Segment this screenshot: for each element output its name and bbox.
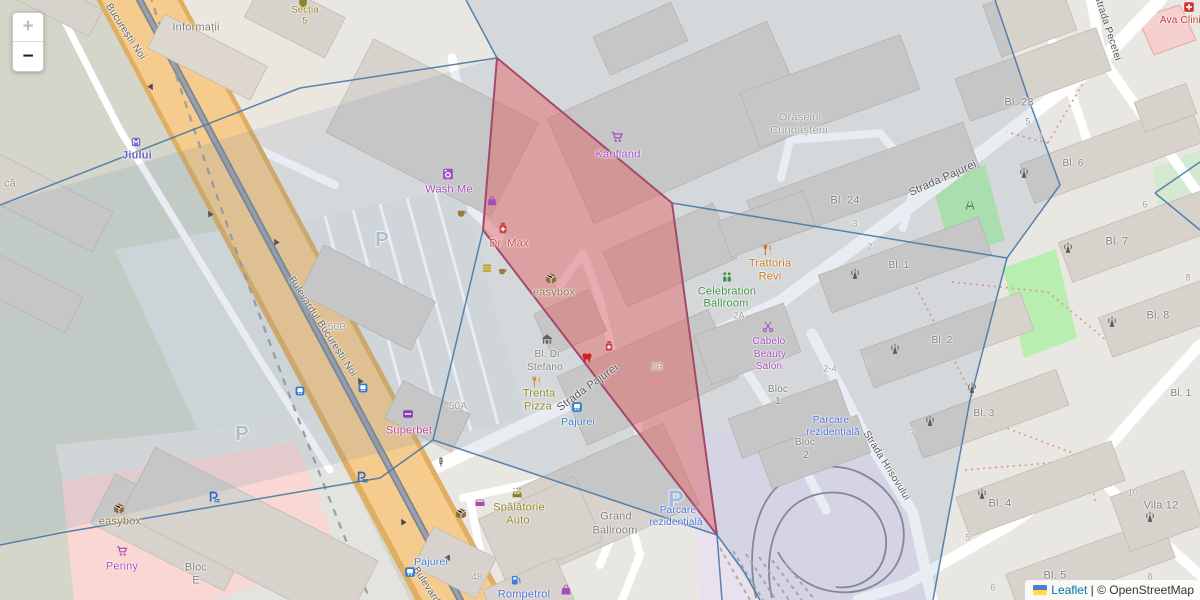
map-label: 6 <box>990 584 995 593</box>
supermarket-cart-icon <box>611 131 624 144</box>
map-label: Trenta <box>523 389 556 400</box>
map-label: Bl. 23 <box>1004 98 1033 109</box>
map-label: Bl. 3 <box>973 409 994 419</box>
bus-stop-icon <box>405 567 416 578</box>
car-wash-icon <box>511 487 523 499</box>
antenna-icon <box>1062 242 1075 255</box>
map-label: 5 <box>302 16 307 26</box>
map-label: Bulevardul <box>410 566 445 600</box>
fuel-station-icon <box>510 574 522 586</box>
bicycle-parking-icon <box>356 471 368 483</box>
map-label: Strada Hrisovului <box>861 430 912 503</box>
antenna-icon <box>1144 511 1157 524</box>
map-label: Strada Pajurei <box>555 362 620 414</box>
zoom-control: + − <box>12 12 44 72</box>
map-label: Celebration <box>698 287 756 298</box>
label-layer: InformațiiSecția5JiuluicăBucureștii NoiB… <box>0 0 1200 600</box>
map-label: Informații <box>172 23 219 34</box>
map-label: Bloc <box>768 385 788 395</box>
map-label: 2B <box>651 363 662 372</box>
map-label: 2 <box>867 243 872 252</box>
map-label: Stefano <box>527 363 563 373</box>
zoom-in-button[interactable]: + <box>13 13 43 42</box>
map-label: Bl. 7 <box>1105 237 1128 248</box>
map-label: Ava Clinic <box>1160 16 1200 26</box>
map-label: Bl. 4 <box>988 499 1011 510</box>
map-label: Superbet <box>386 426 432 437</box>
parcel-locker-icon <box>113 503 126 516</box>
antenna-icon <box>1018 167 1031 180</box>
map-label: Vila 12 <box>1144 501 1179 512</box>
cafe-icon <box>456 207 468 219</box>
map-label: 48 <box>471 573 483 583</box>
map-label: Bl. 24 <box>830 196 859 207</box>
restaurant-icon <box>762 244 774 256</box>
metro-station-icon <box>131 137 142 148</box>
playground-icon <box>964 199 976 211</box>
map-label: Wash Me <box>425 185 472 196</box>
cafe-icon <box>498 266 509 277</box>
zoom-out-button[interactable]: − <box>13 42 43 71</box>
parcel-locker-icon <box>455 508 468 521</box>
map-label: Strada Pecetei <box>1092 0 1123 62</box>
map-label: Jiului <box>122 151 152 162</box>
fast-food-icon <box>482 263 493 274</box>
map-label: Spălătorie <box>493 503 545 514</box>
map-label: Bl. 8 <box>1146 311 1169 322</box>
map-label: easybox <box>533 288 575 299</box>
map-label: Pajurei <box>561 417 595 428</box>
map-label: 1 <box>775 397 781 407</box>
map-label: Cunoașterii <box>770 126 828 137</box>
antenna-icon <box>924 415 937 428</box>
car-shop-icon <box>474 496 486 508</box>
pharmacy-icon <box>497 222 510 235</box>
map-label: Bloc <box>795 438 815 448</box>
map-label: 3 <box>852 220 857 229</box>
map-label: Salon <box>756 362 783 372</box>
map-label: 2 <box>803 451 809 461</box>
map-label: Bucureștii Noi <box>103 2 147 62</box>
shop-icon <box>487 196 498 207</box>
attribution-separator: | <box>1087 583 1097 597</box>
map-label: 6 <box>1142 201 1147 210</box>
map-label: Dr. Max <box>489 239 528 250</box>
map-label: Revi <box>759 272 782 283</box>
map-label: că <box>4 179 16 190</box>
bus-stop-icon <box>572 402 583 413</box>
map-label: E <box>192 576 200 587</box>
antenna-icon <box>889 343 902 356</box>
leaflet-link[interactable]: Leaflet <box>1051 583 1087 597</box>
map-label: Cabelo <box>753 337 786 347</box>
osm-copyright: © OpenStreetMap <box>1097 583 1194 597</box>
map-label: Ballroom <box>592 526 637 537</box>
map-label: Bl. 1 <box>888 261 909 271</box>
map-label: Parcare <box>813 416 849 426</box>
map-label: 2-4 <box>823 365 837 374</box>
beauty-salon-icon <box>762 321 774 333</box>
map-label: Penny <box>106 562 138 573</box>
map-label: rezidențială <box>806 428 860 438</box>
antenna-icon <box>976 488 989 501</box>
supermarket-cart-icon <box>116 545 128 557</box>
map-label: Secția <box>291 5 319 15</box>
map-label: 2A <box>733 312 744 321</box>
map-label: 4 <box>1037 133 1042 142</box>
map-label: Bl. 1 <box>1170 389 1191 399</box>
bicycle-parking-icon <box>208 491 220 503</box>
washing-machine-icon <box>442 168 455 181</box>
map-label: Beauty <box>754 350 786 360</box>
shop-icon <box>560 584 572 596</box>
map-label: Kaufland <box>595 150 640 161</box>
map-label: 3 <box>909 429 914 438</box>
map-label: Strada Pajurei <box>908 159 979 199</box>
map-label: Ballroom <box>703 299 748 310</box>
restaurant-icon <box>531 376 543 388</box>
map-label: Bl. Di <box>534 350 559 360</box>
attribution-bar: Leaflet | © OpenStreetMap <box>1025 580 1200 600</box>
traffic-signals-icon <box>436 457 447 468</box>
map-label: Orășelul <box>779 113 822 124</box>
map-label: Pajurei <box>414 557 448 568</box>
map-label: 5 <box>965 534 970 543</box>
event-venue-icon <box>721 271 733 283</box>
betting-shop-icon <box>402 408 414 420</box>
tram-stop-icon <box>295 386 305 396</box>
map-label: P <box>235 424 249 444</box>
antenna-icon <box>966 382 979 395</box>
map-label: P <box>668 488 684 512</box>
map-label: Rompetrol <box>498 590 551 600</box>
map-label: 8 <box>1185 274 1190 283</box>
pharmacy-icon <box>603 340 615 352</box>
map-label: Bl. 6 <box>1062 159 1083 169</box>
antenna-icon <box>1106 316 1119 329</box>
map-label: Pizza <box>524 402 552 413</box>
tram-stop-icon <box>358 383 368 393</box>
map-label: rezidențială <box>649 518 703 528</box>
map-label: Auto <box>506 516 529 527</box>
shelter-icon <box>541 333 553 345</box>
dentist-icon <box>581 352 593 364</box>
map-label: 1 <box>865 358 870 367</box>
map-label: 50A <box>449 402 467 412</box>
clinic-icon <box>1184 2 1195 13</box>
map-label: Bloc <box>185 563 207 574</box>
antenna-icon <box>849 268 862 281</box>
map-label: P <box>375 230 389 250</box>
map-label: Grand <box>600 512 632 523</box>
map-label: 50B <box>328 323 346 333</box>
parcel-locker-icon <box>545 273 558 286</box>
map-label: 5 <box>1025 118 1030 127</box>
map-label: Parcare <box>660 506 696 516</box>
map-label: 10 <box>1128 489 1138 498</box>
map-label: easybox <box>99 517 141 528</box>
map-label: Trattoria <box>749 259 791 270</box>
ukraine-flag-icon <box>1033 585 1047 595</box>
police-badge-icon <box>298 0 308 8</box>
map-canvas[interactable]: InformațiiSecția5JiuluicăBucureștii NoiB… <box>0 0 1200 600</box>
map-label: Bulevardul Bucureștii Noi <box>286 275 358 378</box>
map-label: Bl. 2 <box>931 336 952 346</box>
